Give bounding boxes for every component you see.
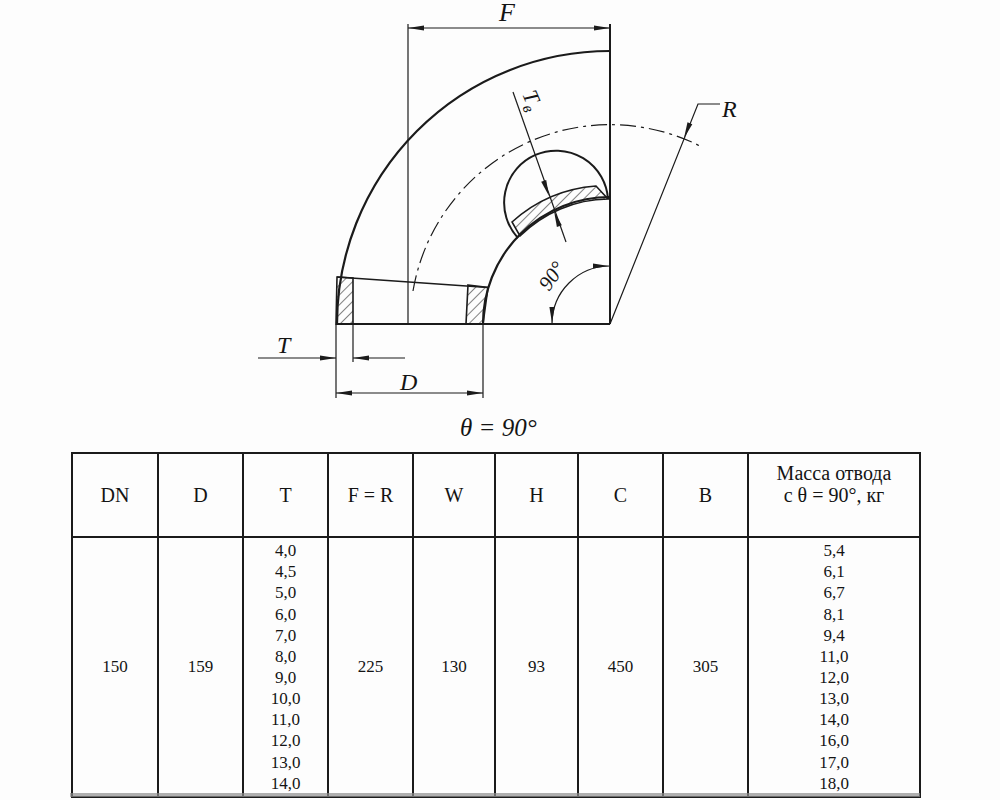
col-header-dn: DN xyxy=(72,453,158,537)
table-value: 14,0 xyxy=(244,773,327,794)
page: F R T D 90° Tв θ = 90° DN D T F = R W H … xyxy=(0,0,1000,800)
lower-left-wall-hatch xyxy=(336,277,353,324)
tv-arrow-upper xyxy=(541,180,549,196)
table-value: 10,0 xyxy=(244,688,327,709)
table-value: 4,5 xyxy=(244,561,327,582)
table-value: 13,0 xyxy=(749,688,919,709)
cell-c: 450 xyxy=(578,537,663,797)
lower-end-section-line xyxy=(337,277,488,288)
table-value: 8,0 xyxy=(244,646,327,667)
table-value: 8,1 xyxy=(749,604,919,625)
table-value: 6,0 xyxy=(244,604,327,625)
table-value: 11,0 xyxy=(749,646,919,667)
table-value: 13,0 xyxy=(244,752,327,773)
table-value: 6,7 xyxy=(749,582,919,603)
col-header-d: D xyxy=(158,453,243,537)
mass-values-stack: 5,46,16,78,19,411,012,013,014,016,017,01… xyxy=(749,538,919,796)
cell-h: 93 xyxy=(495,537,578,797)
dimension-table: DN D T F = R W H C B Масса отвода с θ = … xyxy=(71,452,921,798)
table-data-row: 150 159 4,04,55,06,07,08,09,010,011,012,… xyxy=(72,537,920,797)
r-leader-line xyxy=(610,104,720,324)
table-value: 11,0 xyxy=(244,709,327,730)
table-header-row: DN D T F = R W H C B Масса отвода с θ = … xyxy=(72,453,920,537)
table-value: 12,0 xyxy=(244,730,327,751)
t-arrow-left xyxy=(320,355,336,360)
f-arrow-right xyxy=(594,25,610,30)
table-value: 4,0 xyxy=(244,540,327,561)
mass-header-line1: Масса отвода xyxy=(749,462,919,484)
dim-label-r: R xyxy=(721,96,737,122)
table-value: 17,0 xyxy=(749,752,919,773)
table-value: 9,0 xyxy=(244,667,327,688)
upper-wall-hatch xyxy=(512,186,608,236)
cell-t-list: 4,04,55,06,07,08,09,010,011,012,013,014,… xyxy=(243,537,328,797)
lower-right-wall-hatch xyxy=(466,285,488,324)
f-arrow-left xyxy=(408,25,424,30)
wall-sections xyxy=(336,186,608,324)
table-value: 7,0 xyxy=(244,625,327,646)
tv-arrow-lower xyxy=(554,211,562,227)
angle-label: 90° xyxy=(533,257,570,295)
d-arrow-left xyxy=(336,390,352,395)
theta-caption: θ = 90° xyxy=(460,414,537,441)
table-value: 9,4 xyxy=(749,625,919,646)
t-values-stack: 4,04,55,06,07,08,09,010,011,012,013,014,… xyxy=(244,538,327,796)
angle-arrow-high xyxy=(593,263,609,268)
col-header-h: H xyxy=(495,453,578,537)
cell-w: 130 xyxy=(413,537,495,797)
table-value: 16,0 xyxy=(749,730,919,751)
table-value: 5,4 xyxy=(749,540,919,561)
col-header-w: W xyxy=(413,453,495,537)
cell-d: 159 xyxy=(158,537,243,797)
dim-label-t: T xyxy=(277,332,292,358)
d-arrow-right xyxy=(467,390,483,395)
table-value: 12,0 xyxy=(749,667,919,688)
table-value: 6,1 xyxy=(749,561,919,582)
col-header-c: C xyxy=(578,453,663,537)
table-value: 14,0 xyxy=(749,709,919,730)
dim-label-f: F xyxy=(498,0,516,27)
elbow-outline xyxy=(336,24,610,324)
cell-b: 305 xyxy=(663,537,748,797)
col-header-b: B xyxy=(663,453,748,537)
elbow-drawing: F R T D 90° Tв θ = 90° xyxy=(0,0,1000,450)
arrowheads xyxy=(320,25,692,395)
bottom-edge-line xyxy=(70,793,920,797)
table-value: 18,0 xyxy=(749,773,919,794)
col-header-mass: Масса отвода с θ = 90°, кг xyxy=(748,453,920,537)
col-header-t: T xyxy=(243,453,328,537)
t-arrow-right xyxy=(353,355,369,360)
cell-fr: 225 xyxy=(328,537,413,797)
mass-header-line2: с θ = 90°, кг xyxy=(749,484,919,506)
r-arrow xyxy=(684,122,692,138)
cell-mass-list: 5,46,16,78,19,411,012,013,014,016,017,01… xyxy=(748,537,920,797)
cell-dn: 150 xyxy=(72,537,158,797)
col-header-fr: F = R xyxy=(328,453,413,537)
angle-arrow-low xyxy=(549,307,554,323)
table-value: 5,0 xyxy=(244,582,327,603)
dim-label-d: D xyxy=(399,369,417,395)
